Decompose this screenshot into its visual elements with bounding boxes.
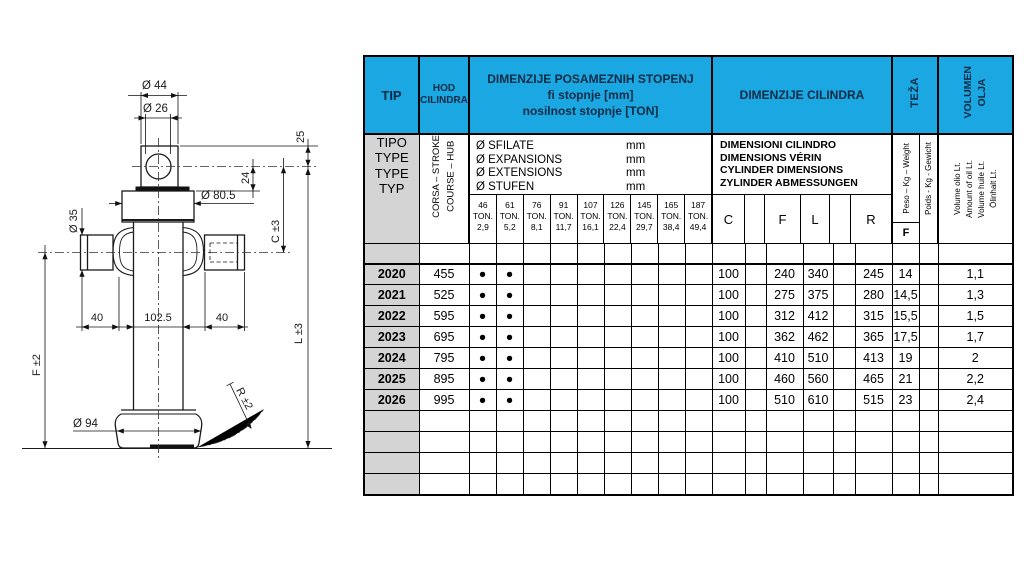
- cell-c: 100: [712, 285, 745, 306]
- peso-kg-weight-label: Peso – Kg – Weight: [902, 143, 911, 214]
- cell-tip: 2021: [364, 285, 419, 306]
- cell-stage-165: [658, 390, 685, 411]
- cell-stage-46: ●: [469, 285, 496, 306]
- poids-kg-gewicht-label: Poids - Kg - Gewicht: [924, 142, 933, 215]
- ton-fi: 145: [631, 200, 657, 211]
- cell-empty: [938, 244, 1013, 264]
- cell-empty: [496, 411, 523, 432]
- cell-stroke: 455: [419, 264, 469, 285]
- dimension-labels: Ø 44 Ø 26 25 24 Ø 80.5 C ±3 Ø 35 40 102.…: [31, 80, 307, 430]
- cell-empty: [685, 474, 712, 495]
- cell-stage-145: [631, 264, 658, 285]
- stage-line-label: Ø SFILATE: [476, 140, 626, 154]
- cell-empty: [855, 432, 892, 453]
- cylinder-outline: [22, 146, 332, 449]
- empty-row: [364, 453, 1013, 474]
- ton-capacity: 29,7: [631, 222, 657, 233]
- cell-empty: [745, 244, 766, 264]
- cell-stage-145: [631, 327, 658, 348]
- cell-empty: [523, 474, 550, 495]
- cell-empty: [496, 244, 523, 264]
- cell-empty: [658, 432, 685, 453]
- cell-stage-126: [604, 306, 631, 327]
- cell-f: 510: [766, 390, 803, 411]
- cell-blank: [833, 348, 855, 369]
- cell-empty: [919, 453, 938, 474]
- cell-blank: [833, 390, 855, 411]
- cell-empty: [469, 453, 496, 474]
- ton-word: TON.: [685, 211, 711, 222]
- cell-empty: [496, 453, 523, 474]
- label-dia-26: Ø 26: [143, 103, 168, 115]
- cell-stage-165: [658, 264, 685, 285]
- cell-stage-165: [658, 369, 685, 390]
- cell-empty: [469, 432, 496, 453]
- stage-line: Ø SFILATEmm: [476, 140, 711, 154]
- cell-oil-volume: 2,4: [938, 390, 1013, 411]
- cell-stage-61: ●: [496, 285, 523, 306]
- cell-stage-46: ●: [469, 348, 496, 369]
- table-body: 2020455●●100240340245141,12021525●●10027…: [364, 244, 1013, 495]
- cell-blank: [919, 264, 938, 285]
- cell-empty: [419, 244, 469, 264]
- cell-stage-187: [685, 348, 712, 369]
- cell-empty: [631, 474, 658, 495]
- cell-empty: [577, 411, 604, 432]
- cell-empty: [803, 474, 833, 495]
- cell-empty: [658, 453, 685, 474]
- cell-empty: [550, 474, 577, 495]
- cell-empty: [892, 432, 919, 453]
- cell-empty: [577, 244, 604, 264]
- cylinder-col-r: R: [851, 195, 891, 243]
- ton-fi: 165: [658, 200, 684, 211]
- cell-stroke: 525: [419, 285, 469, 306]
- stage-line-unit: mm: [626, 154, 645, 168]
- cell-stage-145: [631, 285, 658, 306]
- ton-word: TON.: [604, 211, 630, 222]
- cylinder-col-blank: [745, 195, 765, 243]
- cell-f: 460: [766, 369, 803, 390]
- table-head: TIP HOD CILINDRA DIMENZIJE POSAMEZNIH ST…: [364, 56, 1013, 244]
- cell-empty: [604, 411, 631, 432]
- cell-empty: [803, 244, 833, 264]
- cell-l: 510: [803, 348, 833, 369]
- stage-line-unit: mm: [626, 140, 645, 154]
- technical-drawing: Ø 44 Ø 26 25 24 Ø 80.5 C ±3 Ø 35 40 102.…: [0, 0, 360, 576]
- cell-stage-107: [577, 348, 604, 369]
- cell-empty: [766, 474, 803, 495]
- cell-f: 240: [766, 264, 803, 285]
- cell-stage-187: [685, 285, 712, 306]
- cell-stage-145: [631, 390, 658, 411]
- cell-stage-91: [550, 348, 577, 369]
- weight-subcol-1: Peso – Kg – Weight F: [893, 135, 920, 243]
- ton-column-header: 107TON.16,1: [578, 195, 605, 243]
- label-dia-35: Ø 35: [68, 209, 80, 233]
- cell-oil-volume: 1,7: [938, 327, 1013, 348]
- cylinder-col-f: F: [765, 195, 801, 243]
- cell-empty: [469, 244, 496, 264]
- ton-word: TON.: [497, 211, 523, 222]
- cell-oil-volume: 1,3: [938, 285, 1013, 306]
- cell-stage-46: ●: [469, 264, 496, 285]
- cell-stage-187: [685, 327, 712, 348]
- cell-empty: [685, 411, 712, 432]
- cell-stage-107: [577, 390, 604, 411]
- cell-stage-61: ●: [496, 306, 523, 327]
- cell-weight: 23: [892, 390, 919, 411]
- cell-empty: [803, 453, 833, 474]
- cell-blank: [833, 369, 855, 390]
- cell-stage-76: [523, 390, 550, 411]
- subheader-stages: Ø SFILATEmmØ EXPANSIONSmmØ EXTENSIONSmmØ…: [469, 134, 712, 244]
- cell-empty: [496, 474, 523, 495]
- cell-r: 413: [855, 348, 892, 369]
- cell-empty: [685, 244, 712, 264]
- cell-empty: [577, 432, 604, 453]
- cell-empty: [892, 453, 919, 474]
- ton-column-header: 46TON.2,9: [470, 195, 497, 243]
- weight-header-label: TEŽA: [909, 77, 921, 108]
- datasheet-page: Ø 44 Ø 26 25 24 Ø 80.5 C ±3 Ø 35 40 102.…: [0, 0, 1024, 576]
- stage-line: Ø STUFENmm: [476, 181, 711, 195]
- label-dim-c: C ±3: [270, 220, 282, 243]
- subheader-tipo: TIPO TYPE TYPE TYP: [364, 134, 419, 244]
- cell-l: 412: [803, 306, 833, 327]
- tipo-label: TIPO TYPE TYPE TYP: [375, 135, 409, 196]
- cell-stage-126: [604, 348, 631, 369]
- cell-oil-volume: 2,2: [938, 369, 1013, 390]
- label-dim-25: 25: [295, 131, 307, 143]
- cell-stroke: 895: [419, 369, 469, 390]
- cell-weight: 21: [892, 369, 919, 390]
- cell-weight: 14,5: [892, 285, 919, 306]
- cell-blank: [919, 306, 938, 327]
- ton-capacity: 5,2: [497, 222, 523, 233]
- table-row-2023: 2023695●●10036246236517,51,7: [364, 327, 1013, 348]
- cell-l: 340: [803, 264, 833, 285]
- cell-l: 462: [803, 327, 833, 348]
- cell-empty: [523, 432, 550, 453]
- cell-r: 315: [855, 306, 892, 327]
- cell-blank: [833, 264, 855, 285]
- empty-row: [364, 432, 1013, 453]
- label-dia-94: Ø 94: [73, 418, 99, 430]
- cell-weight: 17,5: [892, 327, 919, 348]
- cell-empty: [855, 453, 892, 474]
- cell-empty: [364, 411, 419, 432]
- cell-empty: [712, 411, 745, 432]
- cell-empty: [419, 411, 469, 432]
- label-dia-80-5: Ø 80.5: [201, 190, 236, 202]
- cell-empty: [550, 453, 577, 474]
- cell-stage-107: [577, 306, 604, 327]
- label-dim-40-right: 40: [216, 312, 228, 324]
- corsa-stroke-label: CORSA – STROKE COURSE – HUB: [430, 135, 459, 218]
- cell-c: 100: [712, 327, 745, 348]
- cell-stage-165: [658, 327, 685, 348]
- cell-empty: [803, 432, 833, 453]
- label-dim-r: R ±2: [233, 386, 254, 412]
- cell-empty: [604, 432, 631, 453]
- cell-stage-91: [550, 369, 577, 390]
- cell-stage-76: [523, 369, 550, 390]
- cell-tip: 2024: [364, 348, 419, 369]
- cell-oil-volume: 2: [938, 348, 1013, 369]
- cell-stage-107: [577, 369, 604, 390]
- ton-column-header: 187TON.49,4: [685, 195, 711, 243]
- cell-stage-91: [550, 264, 577, 285]
- cell-empty: [803, 411, 833, 432]
- cell-stage-91: [550, 390, 577, 411]
- ton-fi: 107: [578, 200, 604, 211]
- cell-empty: [892, 474, 919, 495]
- label-dim-102-5: 102.5: [144, 312, 172, 324]
- cell-blank: [745, 369, 766, 390]
- cell-stage-46: ●: [469, 306, 496, 327]
- cell-stage-91: [550, 327, 577, 348]
- cell-blank: [919, 390, 938, 411]
- ton-header-cells: 46TON.2,961TON.5,276TON.8,191TON.11,7107…: [470, 194, 711, 243]
- cell-empty: [469, 411, 496, 432]
- cell-empty: [919, 244, 938, 264]
- cell-empty: [712, 453, 745, 474]
- cell-empty: [855, 411, 892, 432]
- cell-stage-126: [604, 327, 631, 348]
- ton-capacity: 38,4: [658, 222, 684, 233]
- cell-r: 465: [855, 369, 892, 390]
- cell-empty: [550, 432, 577, 453]
- cylinder-dim-line: DIMENSIONI CILINDRO: [720, 139, 891, 152]
- cell-weight: 14: [892, 264, 919, 285]
- cell-l: 560: [803, 369, 833, 390]
- cell-stage-76: [523, 264, 550, 285]
- stage-line-label: Ø EXTENSIONS: [476, 167, 626, 181]
- header-weight: TEŽA: [892, 56, 938, 134]
- label-dim-f: F ±2: [31, 354, 43, 376]
- cell-empty: [938, 453, 1013, 474]
- subheader-cylinder: DIMENSIONI CILINDRODIMENSIONS VÉRINCYLIN…: [712, 134, 892, 244]
- cell-stage-145: [631, 348, 658, 369]
- weight-subcol-2: Poids - Kg - Gewicht: [920, 135, 937, 243]
- cell-empty: [577, 453, 604, 474]
- cell-c: 100: [712, 369, 745, 390]
- cell-empty: [550, 411, 577, 432]
- cell-stage-107: [577, 285, 604, 306]
- cell-empty: [766, 244, 803, 264]
- table-row-2022: 2022595●●10031241231515,51,5: [364, 306, 1013, 327]
- cell-empty: [523, 411, 550, 432]
- cell-stage-126: [604, 369, 631, 390]
- cell-stage-126: [604, 264, 631, 285]
- cylinder-lines: DIMENSIONI CILINDRODIMENSIONS VÉRINCYLIN…: [713, 135, 891, 194]
- cell-empty: [631, 432, 658, 453]
- cell-empty: [745, 411, 766, 432]
- cell-c: 100: [712, 264, 745, 285]
- cell-empty: [712, 432, 745, 453]
- cell-stage-107: [577, 327, 604, 348]
- ton-capacity: 8,1: [524, 222, 550, 233]
- cell-blank: [745, 285, 766, 306]
- cell-stage-187: [685, 390, 712, 411]
- cell-empty: [745, 432, 766, 453]
- cell-stage-61: ●: [496, 327, 523, 348]
- cell-blank: [919, 327, 938, 348]
- cell-empty: [604, 474, 631, 495]
- cell-stroke: 595: [419, 306, 469, 327]
- header-hod-cilindra: HOD CILINDRA: [419, 56, 469, 134]
- stage-line-label: Ø EXPANSIONS: [476, 154, 626, 168]
- table-row-2025: 2025895●●100460560465212,2: [364, 369, 1013, 390]
- cell-stage-187: [685, 306, 712, 327]
- cell-stage-91: [550, 306, 577, 327]
- label-dim-l: L ±3: [293, 323, 305, 344]
- ton-capacity: 22,4: [604, 222, 630, 233]
- cell-empty: [938, 432, 1013, 453]
- cylinder-cols: CFLR: [713, 194, 891, 243]
- cell-empty: [364, 432, 419, 453]
- cell-stage-145: [631, 306, 658, 327]
- cell-empty: [364, 453, 419, 474]
- table-row-2020: 2020455●●100240340245141,1: [364, 264, 1013, 285]
- ton-column-header: 165TON.38,4: [658, 195, 685, 243]
- cell-empty: [892, 244, 919, 264]
- cell-c: 100: [712, 390, 745, 411]
- cell-empty: [469, 474, 496, 495]
- cell-blank: [919, 348, 938, 369]
- ton-column-header: 91TON.11,7: [551, 195, 578, 243]
- cell-oil-volume: 1,5: [938, 306, 1013, 327]
- ton-word: TON.: [658, 211, 684, 222]
- ton-column-header: 145TON.29,7: [631, 195, 658, 243]
- cell-empty: [938, 474, 1013, 495]
- cell-c: 100: [712, 306, 745, 327]
- cell-stage-46: ●: [469, 327, 496, 348]
- ton-capacity: 2,9: [470, 222, 496, 233]
- ton-word: TON.: [551, 211, 577, 222]
- cell-stage-61: ●: [496, 348, 523, 369]
- cell-f: 275: [766, 285, 803, 306]
- cell-c: 100: [712, 348, 745, 369]
- cell-blank: [745, 390, 766, 411]
- cell-empty: [712, 474, 745, 495]
- header-oil-volume: VOLUMEN OLJA: [938, 56, 1013, 134]
- cell-stage-107: [577, 264, 604, 285]
- stage-line: Ø EXTENSIONSmm: [476, 167, 711, 181]
- cell-l: 375: [803, 285, 833, 306]
- cell-empty: [419, 453, 469, 474]
- subheader-volume: Volume olio Lt. Amount of oil Lt. Volume…: [938, 134, 1013, 244]
- stage-line-unit: mm: [626, 167, 645, 181]
- ton-fi: 76: [524, 200, 550, 211]
- cell-empty: [919, 411, 938, 432]
- cylinder-dim-line: ZYLINDER ABMESSUNGEN: [720, 177, 891, 190]
- cell-empty: [631, 411, 658, 432]
- cell-tip: 2025: [364, 369, 419, 390]
- cell-empty: [604, 453, 631, 474]
- cell-stage-76: [523, 327, 550, 348]
- subheader-row: TIPO TYPE TYPE TYP CORSA – STROKE COURSE…: [364, 134, 1013, 244]
- cell-stage-165: [658, 348, 685, 369]
- cell-empty: [745, 474, 766, 495]
- cell-empty: [833, 474, 855, 495]
- cell-empty: [364, 474, 419, 495]
- cell-empty: [658, 474, 685, 495]
- cell-stage-76: [523, 285, 550, 306]
- cylinder-dim-line: DIMENSIONS VÉRIN: [720, 152, 891, 165]
- cell-stroke: 695: [419, 327, 469, 348]
- cell-stroke: 995: [419, 390, 469, 411]
- cell-empty: [523, 453, 550, 474]
- ton-fi: 91: [551, 200, 577, 211]
- cell-stroke: 795: [419, 348, 469, 369]
- cell-tip: 2022: [364, 306, 419, 327]
- cell-empty: [833, 432, 855, 453]
- cell-empty: [766, 453, 803, 474]
- ton-capacity: 16,1: [578, 222, 604, 233]
- cylinder-col-l: L: [801, 195, 830, 243]
- cell-empty: [631, 453, 658, 474]
- cell-blank: [745, 264, 766, 285]
- header-stage-dimensions: DIMENZIJE POSAMEZNIH STOPENJ fi stopnje …: [469, 56, 712, 134]
- cell-empty: [419, 432, 469, 453]
- cell-stage-187: [685, 264, 712, 285]
- cell-tip: 2026: [364, 390, 419, 411]
- cell-f: 410: [766, 348, 803, 369]
- cell-blank: [919, 369, 938, 390]
- cell-empty: [833, 244, 855, 264]
- cell-blank: [833, 285, 855, 306]
- ton-fi: 61: [497, 200, 523, 211]
- cell-stage-46: ●: [469, 390, 496, 411]
- cell-weight: 15,5: [892, 306, 919, 327]
- cell-blank: [833, 306, 855, 327]
- cell-empty: [658, 244, 685, 264]
- cylinder-dim-line: CYLINDER DIMENSIONS: [720, 164, 891, 177]
- label-dia-44: Ø 44: [142, 80, 168, 92]
- ton-word: TON.: [578, 211, 604, 222]
- cell-stage-46: ●: [469, 369, 496, 390]
- ton-fi: 46: [470, 200, 496, 211]
- cell-empty: [604, 244, 631, 264]
- table-row-2026: 2026995●●100510610515232,4: [364, 390, 1013, 411]
- stage-line: Ø EXPANSIONSmm: [476, 154, 711, 168]
- cell-tip: 2020: [364, 264, 419, 285]
- ton-word: TON.: [631, 211, 657, 222]
- cell-stage-126: [604, 390, 631, 411]
- cell-oil-volume: 1,1: [938, 264, 1013, 285]
- ton-fi: 187: [685, 200, 711, 211]
- subheader-corsa: CORSA – STROKE COURSE – HUB: [419, 134, 469, 244]
- cell-weight: 19: [892, 348, 919, 369]
- cylinder-col-c: C: [713, 195, 745, 243]
- cell-empty: [685, 432, 712, 453]
- cell-stage-187: [685, 369, 712, 390]
- table-row-2021: 2021525●●10027537528014,51,3: [364, 285, 1013, 306]
- cell-r: 515: [855, 390, 892, 411]
- cell-tip: 2023: [364, 327, 419, 348]
- ton-word: TON.: [470, 211, 496, 222]
- stage-line-unit: mm: [626, 181, 645, 195]
- weight-f-cell: F: [893, 222, 919, 243]
- cell-r: 280: [855, 285, 892, 306]
- label-dim-40-left: 40: [91, 312, 103, 324]
- cell-f: 362: [766, 327, 803, 348]
- oil-volume-header-label: VOLUMEN OLJA: [961, 66, 989, 119]
- cell-stage-165: [658, 285, 685, 306]
- cell-empty: [577, 474, 604, 495]
